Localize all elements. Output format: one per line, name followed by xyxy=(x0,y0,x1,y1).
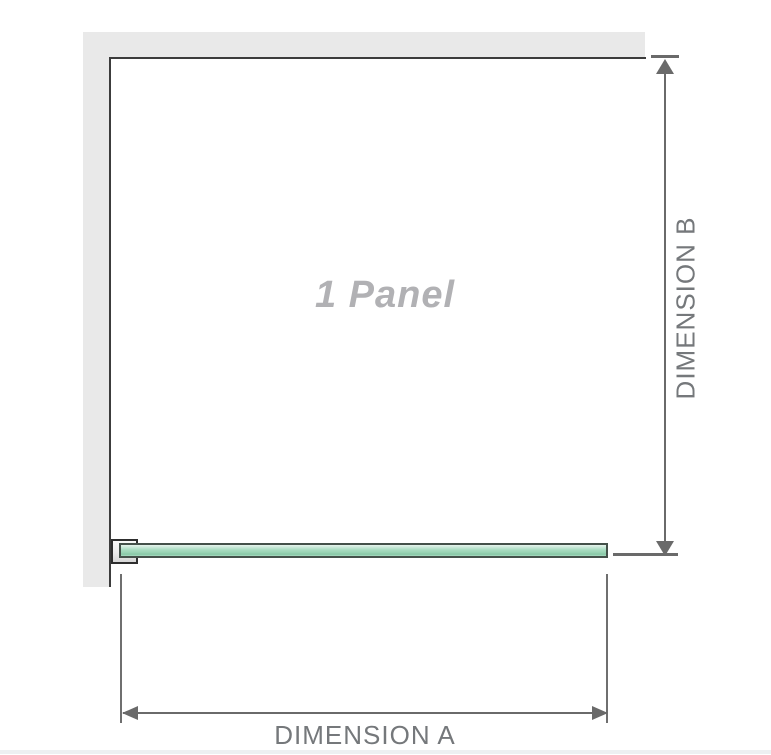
glass-panel xyxy=(119,543,608,558)
panel-outline-top xyxy=(109,57,646,59)
arrow-up-icon xyxy=(656,59,674,74)
wall-left xyxy=(83,32,110,587)
panel-dimension-diagram: 1 Panel DIMENSION B DIMENSION A xyxy=(0,0,771,755)
dimension-a-label: DIMENSION A xyxy=(122,720,608,751)
dimension-b-label: DIMENSION B xyxy=(671,217,702,400)
dimension-a-line xyxy=(123,712,607,714)
panel-count-label: 1 Panel xyxy=(275,274,495,317)
dimension-b-line xyxy=(664,61,666,555)
arrow-left-icon xyxy=(122,706,138,720)
dimension-a-extension-right xyxy=(606,574,608,723)
arrow-down-icon xyxy=(656,541,674,556)
wall-top xyxy=(83,32,645,58)
dimension-b-top-tick xyxy=(651,55,679,58)
dimension-a-extension-left xyxy=(120,574,122,723)
bottom-edge-line xyxy=(0,750,771,754)
arrow-right-icon xyxy=(592,706,608,720)
panel-outline-left xyxy=(109,57,111,587)
